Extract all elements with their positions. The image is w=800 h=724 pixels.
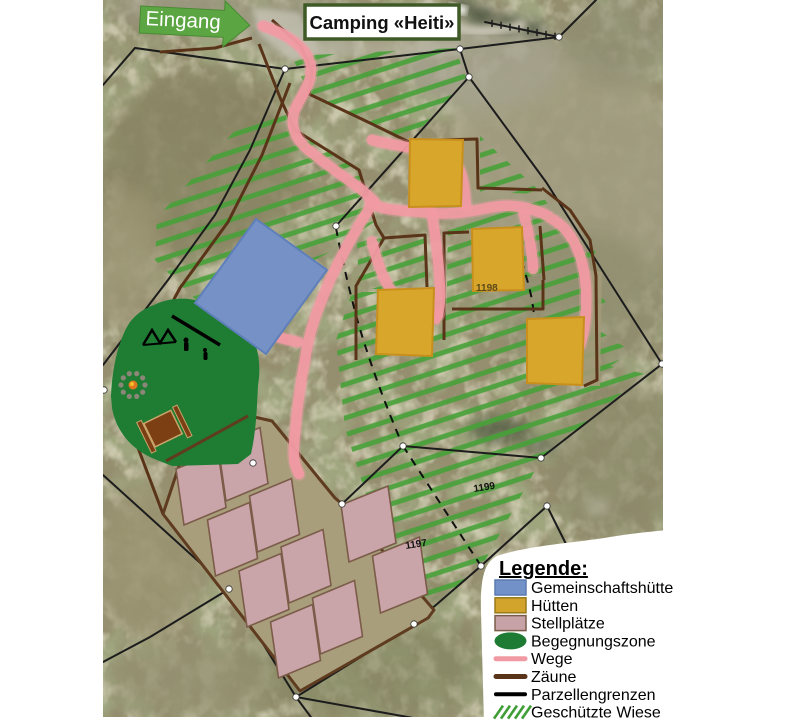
svg-text:Hütten: Hütten: [531, 598, 578, 615]
svg-text:Stellplätze: Stellplätze: [531, 616, 605, 633]
svg-text:Gemeinschaftshütte: Gemeinschaftshütte: [531, 580, 673, 597]
svg-text:Eingang: Eingang: [145, 7, 221, 34]
svg-text:Begegnungszone: Begegnungszone: [531, 633, 656, 650]
svg-text:Camping «Heiti»: Camping «Heiti»: [310, 12, 455, 33]
svg-text:Geschützte Wiese: Geschützte Wiese: [531, 705, 661, 722]
svg-text:Wege: Wege: [531, 651, 573, 668]
svg-text:1198: 1198: [476, 283, 498, 294]
svg-text:Zäune: Zäune: [531, 669, 576, 686]
svg-text:Legende:: Legende:: [499, 558, 588, 580]
svg-text:Parzellengrenzen: Parzellengrenzen: [531, 687, 656, 704]
